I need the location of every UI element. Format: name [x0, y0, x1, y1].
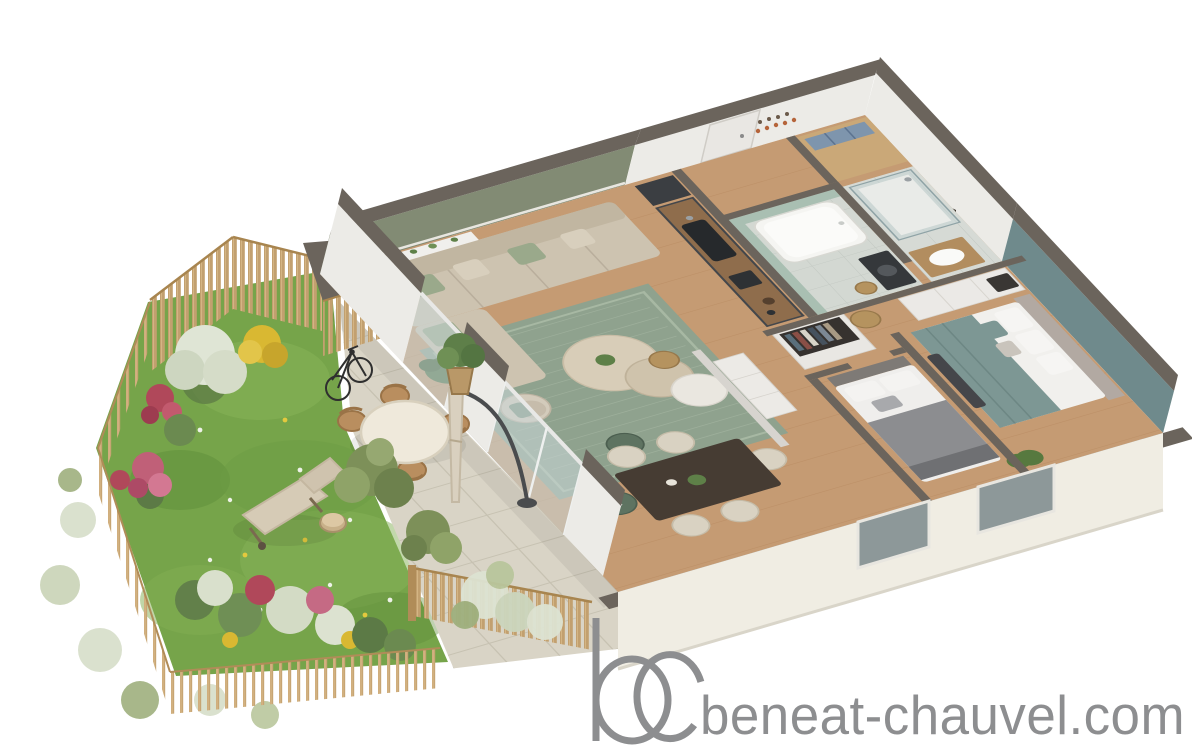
floor-plan-page: beneat-chauvel.com [0, 0, 1192, 749]
tree-stump-table [320, 513, 346, 532]
logo-b-bowl [596, 659, 668, 741]
floor-plan-render: beneat-chauvel.com [0, 0, 1192, 749]
door-handle [740, 134, 744, 138]
brand-url: beneat-chauvel.com [700, 684, 1185, 746]
